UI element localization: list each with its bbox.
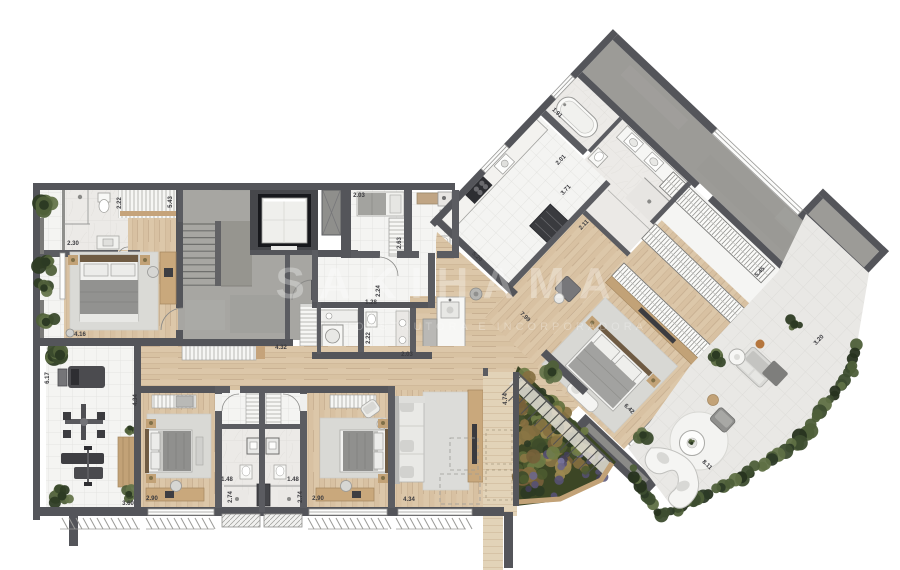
svg-text:2.74: 2.74	[298, 491, 304, 503]
svg-text:2.22: 2.22	[117, 197, 123, 209]
svg-text:4.32: 4.32	[275, 345, 287, 351]
svg-text:1.48: 1.48	[221, 477, 233, 483]
svg-text:2.90: 2.90	[146, 496, 158, 502]
svg-text:2.03: 2.03	[401, 352, 413, 358]
svg-text:1.48: 1.48	[287, 477, 299, 483]
svg-text:4.34: 4.34	[403, 497, 415, 503]
svg-text:CONSTRUTORA E INCORPORADORA: CONSTRUTORA E INCORPORADORA	[343, 321, 647, 333]
svg-text:6.17: 6.17	[45, 372, 51, 384]
svg-text:2.90: 2.90	[312, 496, 324, 502]
svg-text:2.03: 2.03	[353, 193, 365, 199]
svg-text:2.30: 2.30	[67, 241, 79, 247]
svg-text:SAKIHAMA: SAKIHAMA	[275, 259, 624, 308]
svg-text:2.63: 2.63	[397, 237, 403, 249]
svg-text:4.74: 4.74	[503, 393, 509, 405]
svg-text:3.60: 3.60	[122, 501, 134, 507]
svg-text:2.74: 2.74	[228, 491, 234, 503]
svg-text:2.22: 2.22	[366, 332, 372, 344]
svg-text:4.34: 4.34	[133, 394, 139, 406]
svg-text:5.43: 5.43	[168, 196, 174, 208]
svg-text:4.16: 4.16	[74, 332, 86, 338]
